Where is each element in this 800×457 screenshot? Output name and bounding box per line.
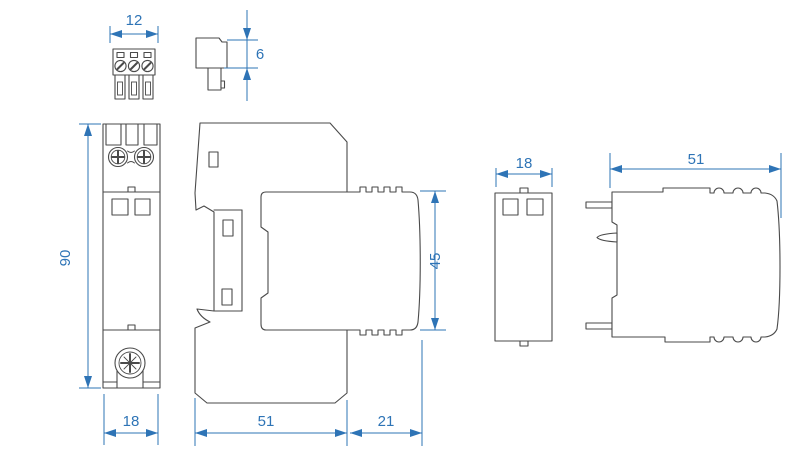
device-side-view: 45 51 21 (195, 123, 446, 446)
arrow-left-icon (350, 429, 362, 437)
vent-slot (223, 220, 233, 236)
arrow-right-icon (146, 429, 158, 437)
module-pin (586, 323, 612, 329)
arrow-left-icon (496, 170, 508, 178)
dimension-drawing-svg: 12 6 (0, 0, 800, 457)
terminal-opening (131, 53, 138, 58)
dim-module-height: 45 (420, 191, 446, 330)
dim-label: 51 (688, 151, 705, 168)
terminal-slot (106, 124, 121, 145)
indicator-window (503, 199, 518, 215)
dim-base-height: 90 (57, 124, 101, 388)
arrow-right-icon (410, 429, 422, 437)
dim-label: 18 (123, 413, 140, 430)
seam-tab (128, 325, 135, 330)
terminal-slot (126, 124, 138, 145)
terminal-side-body (196, 38, 227, 68)
dim-label: 18 (516, 155, 533, 172)
vent-slot (222, 289, 232, 305)
module-side-outline (261, 187, 420, 335)
dim-label: 51 (258, 413, 275, 430)
arrow-down-icon (243, 28, 251, 40)
arrow-up-icon (431, 191, 439, 203)
terminal-block-side-view: 6 (196, 10, 264, 101)
pin-latch (221, 81, 225, 88)
arrow-left-icon (610, 165, 622, 173)
dim-label: 6 (256, 46, 264, 63)
dim-base-depth: 51 (195, 398, 347, 446)
arrow-right-icon (540, 170, 552, 178)
module-side-view: 51 (586, 151, 781, 342)
arrow-down-icon (431, 318, 439, 330)
module-pin (586, 202, 612, 208)
dim-label: 12 (126, 12, 143, 29)
module-front-view: 18 (495, 155, 552, 346)
dim-base-width: 18 (104, 394, 158, 445)
terminal-opening (144, 53, 151, 58)
dim-label: 21 (378, 413, 395, 430)
dim-overhang: 21 (350, 340, 422, 446)
terminal-block-front-view: 12 (110, 12, 158, 99)
module-side-outline (612, 188, 780, 342)
indicator-window (527, 199, 543, 215)
indicator-window (112, 199, 128, 215)
terminal-opening (117, 53, 124, 58)
technical-drawing-canvas: 12 6 (0, 0, 800, 457)
arrow-left-icon (195, 429, 207, 437)
arrow-right-icon (335, 429, 347, 437)
seam-tab (128, 187, 135, 192)
device-front-view: 90 18 (57, 124, 160, 445)
dim-label: 45 (427, 253, 444, 270)
arrow-right-icon (769, 165, 781, 173)
indicator-window (135, 199, 150, 215)
arrow-left-icon (104, 429, 116, 437)
module-latch (597, 233, 617, 242)
arrow-up-icon (84, 124, 92, 136)
arrow-up-icon (243, 68, 251, 80)
terminal-side-pin (208, 68, 221, 90)
terminal-slot (144, 124, 157, 145)
arrow-left-icon (110, 30, 122, 38)
dim-module-width: 18 (496, 155, 552, 187)
arrow-right-icon (146, 30, 158, 38)
vent-slot (209, 152, 218, 167)
dim-connector-width: 12 (110, 12, 158, 43)
dim-connector-depth: 6 (224, 10, 264, 101)
arrow-down-icon (84, 376, 92, 388)
dim-label: 90 (57, 250, 74, 267)
